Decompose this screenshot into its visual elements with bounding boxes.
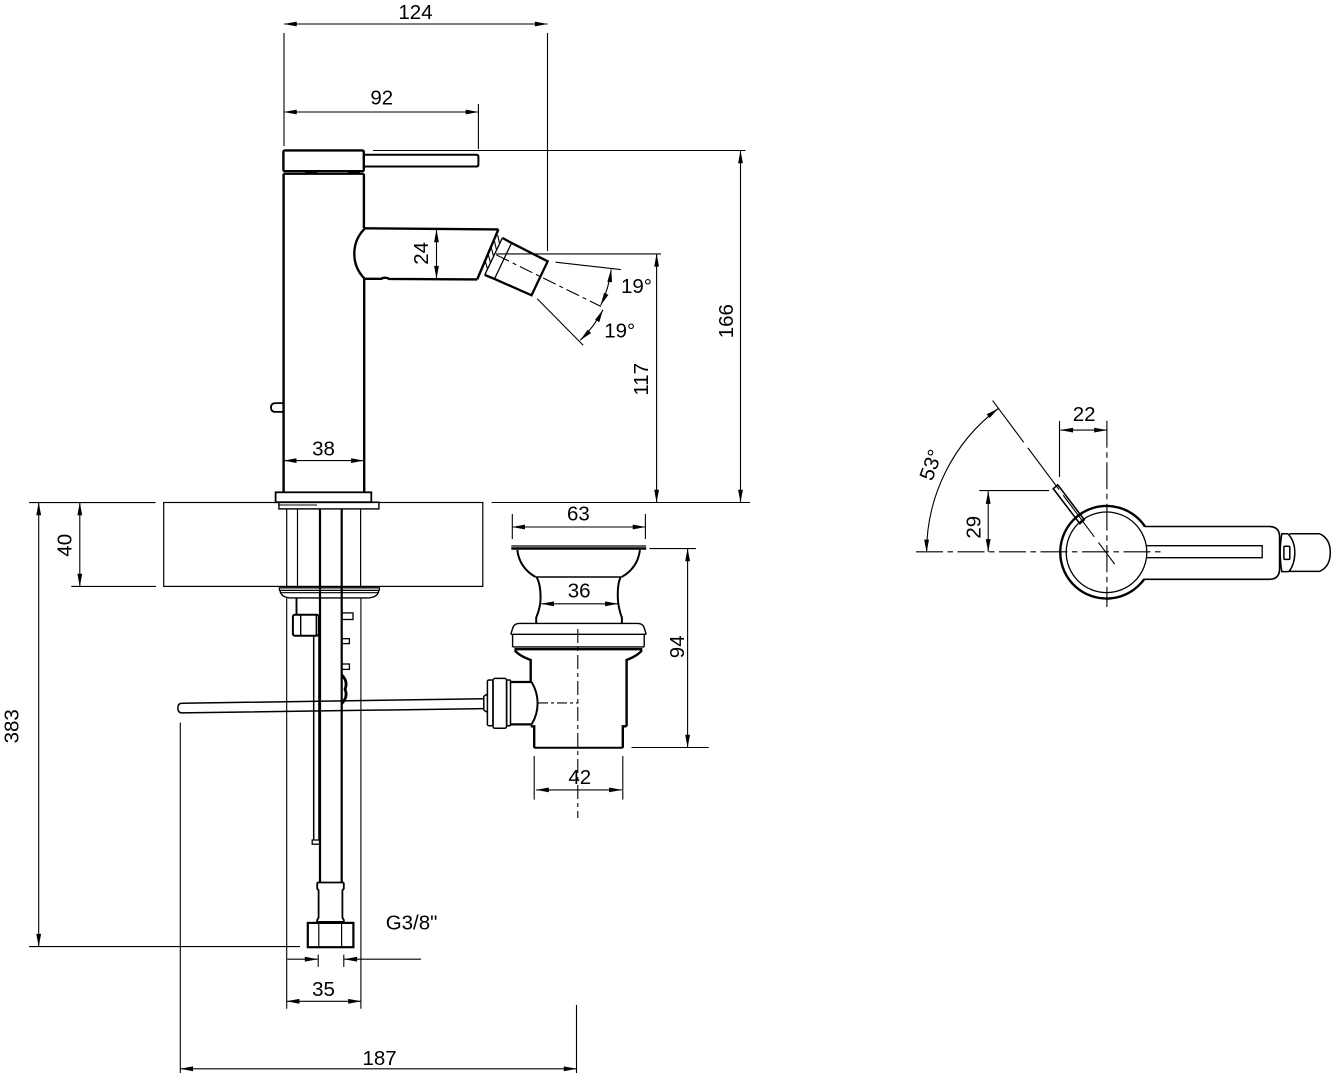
svg-text:22: 22 [1073,403,1096,426]
svg-text:63: 63 [567,503,590,526]
svg-text:40: 40 [54,534,77,557]
svg-text:29: 29 [963,516,986,539]
svg-text:94: 94 [666,635,689,658]
svg-text:G3/8": G3/8" [386,911,438,934]
svg-text:38: 38 [312,438,335,461]
svg-text:124: 124 [398,1,432,24]
svg-text:24: 24 [410,242,433,265]
svg-text:35: 35 [312,978,335,1001]
svg-text:42: 42 [568,766,591,789]
svg-text:166: 166 [715,304,738,338]
svg-text:36: 36 [568,580,591,603]
svg-text:92: 92 [370,87,393,110]
svg-text:187: 187 [362,1047,396,1070]
svg-text:117: 117 [630,363,653,396]
svg-text:383: 383 [0,709,23,743]
svg-text:19°: 19° [621,275,652,298]
svg-text:19°: 19° [604,320,635,343]
